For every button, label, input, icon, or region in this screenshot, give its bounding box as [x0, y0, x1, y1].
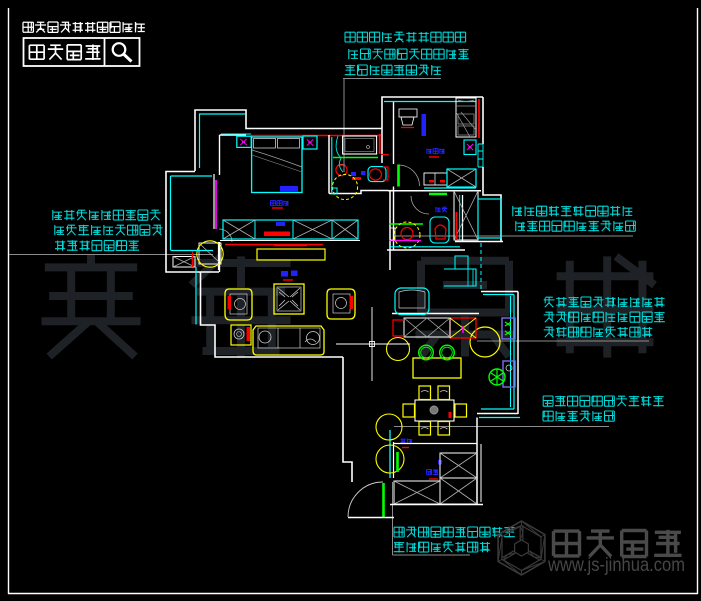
- svg-text:www.js-jinhua.com: www.js-jinhua.com: [547, 555, 685, 576]
